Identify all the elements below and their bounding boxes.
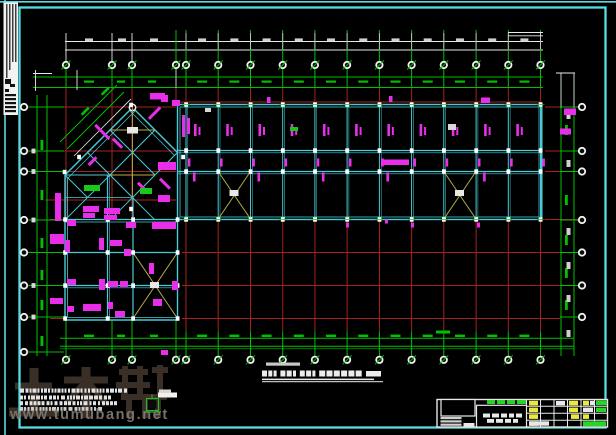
svg-text:www.tumubang.net: www.tumubang.net	[9, 407, 169, 423]
